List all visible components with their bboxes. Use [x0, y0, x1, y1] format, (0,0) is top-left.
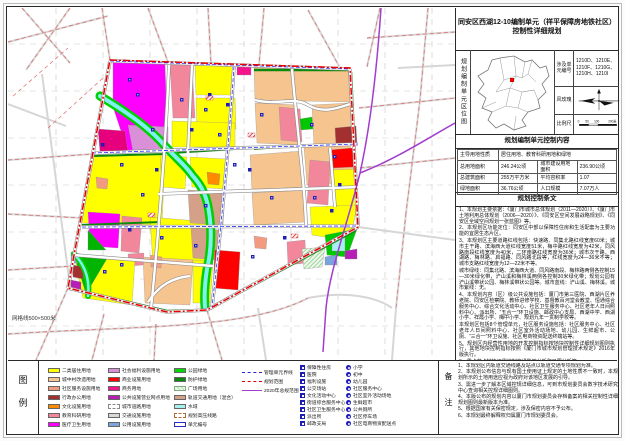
legend-line-red-dashdot: [242, 381, 262, 382]
legend-item: 行政办公用地: [48, 393, 100, 402]
legend-item: 单元编号: [174, 420, 236, 429]
notes-text: 1、本规划区内轨道交通线路及站点以轨道交通专项规划为准。2、本规划公布信息与现有…: [458, 363, 618, 432]
legend-facility-item: 幼儿园: [346, 378, 396, 385]
legend-column-3: 公园绿地防护绿地广场用地轨道交通用地（混合）水域规划高压线路单元编号: [174, 366, 236, 429]
cell-value: 1.07: [577, 173, 616, 184]
cell-value: 居住用地、教育科研用地和绿地: [499, 150, 617, 161]
legend-notes-divider: [438, 361, 439, 434]
legend-swatch-fill: [48, 422, 60, 427]
legend-item-label: 幼儿园: [353, 378, 367, 385]
community-service-center-icon: [346, 386, 351, 391]
legend-facility-item: 社区停车场: [346, 413, 396, 420]
provisions-header: 规划控制条文: [456, 192, 618, 207]
post-office-icon: [300, 421, 305, 426]
scale-bar: 050 100200米: [574, 114, 622, 134]
legend-item: 公共设施营业网点用地: [108, 393, 170, 402]
public-toilet-icon: [346, 407, 351, 412]
legend-item-label: 交通设施用地: [122, 412, 151, 419]
legend-facility-item: 公交场站: [300, 385, 345, 392]
legend-facility-item: 街道综合服务中心: [300, 399, 345, 406]
scale-bar-row: 比例尺 050 100200米: [555, 114, 619, 134]
zoning-map-panel: 网格线500×500米: [8, 8, 455, 360]
svg-text:200米: 200米: [608, 118, 617, 123]
legend-item-label: 社区卫生服务中心: [307, 406, 345, 413]
legend-item: 文化设施用地: [48, 402, 100, 411]
legend-line-purple-solid: [242, 390, 262, 391]
legend-swatch-fill: [108, 422, 120, 427]
legend-item-label: 二类居住用地: [62, 367, 91, 374]
legend-column-lines: 管理单元界线规划范围2020年总规范围: [242, 368, 299, 395]
provision-item: 4、本规划内容（区）级公共设施包括：厦门市第三医院、西湖片区养老院、同安区检察院…: [459, 293, 615, 322]
legend-swatch-fill: [48, 377, 60, 382]
note-item: 4、本版公布的规划内容以厦门市规划委员会存档备案的相关控制性详细规划图则最新版本…: [458, 394, 618, 406]
legend-swatch-fill: [48, 404, 60, 409]
legend-facility-item: 派出所: [300, 413, 345, 420]
legend-item-label: 广场用地: [188, 385, 207, 392]
bus-station-icon: [300, 386, 305, 391]
legend-item: 公用设施用地: [108, 420, 170, 429]
legend-item-label: 公共设施营业网点用地: [122, 394, 170, 401]
hospital-icon: [300, 372, 305, 377]
legend-item-label: 规划范围: [264, 378, 283, 385]
legend-swatch-fill: [174, 404, 186, 409]
unit-codes-row: 涉及单元编号 1210D、1210E、1210F、1210G、1210H、121…: [555, 50, 619, 87]
legend-facility-item: 福利设施: [300, 378, 345, 385]
legend-item-label: 街道综合服务中心: [307, 399, 345, 406]
legend-column-facility-squares: 保障性住房医院福利设施公交场站文化活动中心街道综合服务中心社区卫生服务中心派出所…: [300, 364, 345, 427]
legend-swatch-fill: [108, 377, 120, 382]
legend-item: 社会福利设施用地: [108, 366, 170, 375]
svg-text:100: 100: [594, 119, 599, 123]
legend-item: 社区服务设施用地: [48, 384, 100, 393]
location-info-cells: 涉及单元编号 1210D、1210E、1210F、1210G、1210H、121…: [554, 50, 619, 134]
control-content-table: 主导用地性质 居住用地、教育科研用地和绿地 总用地面积 246.24公顷 城市建…: [456, 148, 618, 193]
legend-swatch-fill: [48, 413, 60, 418]
community-parking-icon: [346, 414, 351, 419]
unit-codes-label: 涉及单元编号: [555, 50, 574, 86]
sheet-title-line1: 同安区西湖12-10编制单元（祥平保障房地铁社区）: [456, 18, 618, 27]
legend-item: 城市道路用地: [108, 402, 170, 411]
legend-item-label: 医院: [307, 371, 317, 378]
scale-bar-label: 比例尺: [555, 114, 574, 134]
delivery-point-icon: [346, 421, 351, 426]
legend-item-label: 防护绿地: [188, 376, 207, 383]
legend-item-label: 轨道交通用地（混合）: [188, 394, 236, 401]
zoning-map: 网格线500×500米: [8, 8, 455, 360]
legend-item-label: 派出所: [307, 413, 321, 420]
legend-swatch-fill: [48, 386, 60, 391]
provisions-text: 1、本规划主要依据：《厦门市城市总体规划（2011—2020）》、《厦门市土地利…: [456, 206, 618, 360]
legend-item: 规划高压线路: [174, 411, 236, 420]
legend-column-facility-circles: 小学初中幼儿园社区服务中心社区室外活动场地生鲜超市公共厕所社区停车场社区电商物资…: [346, 364, 396, 427]
provision-item: 2、本规划区功能定位：同安区中部以保障性住房和生活配套为主要功能的宜居生态片区。: [459, 226, 615, 238]
legend-item-label: 城中村改造用地: [62, 376, 96, 383]
legend-facility-item: 生鲜超市: [346, 399, 396, 406]
legend-swatch-fill: [48, 368, 60, 373]
map-grid-note: 网格线500×500米: [12, 314, 56, 322]
legend-facility-item: 初中: [346, 371, 396, 378]
cell-value: 255万平方米: [499, 173, 538, 184]
provision-item: 本规划区包括8个管理单元，社区服务设施包括：社区服务中心、社区老年人日间照料中心…: [459, 323, 615, 340]
legend-item: 公园绿地: [174, 366, 236, 375]
legend-swatch-fill: [108, 386, 120, 391]
legend-item-label: 保障性住房: [307, 364, 331, 371]
cell-value: 246.24公顷: [499, 160, 538, 173]
legend-item: 水域: [174, 402, 236, 411]
legend-item-label: 医疗卫生用地: [62, 421, 91, 428]
kindergarten-icon: [346, 379, 351, 384]
legend-item: 医疗卫生用地: [48, 420, 100, 429]
legend-item: 商业设施用地: [108, 375, 170, 384]
legend-item-label: 公交场站: [307, 385, 326, 392]
legend-item-label: 管理单元界线: [264, 369, 293, 376]
provision-item: 1、本规划主要依据：《厦门市城市总体规划（2011—2020）》、《厦门市土地利…: [459, 208, 615, 225]
note-item: 2、本规划公布信息与现有国土使用证上规定的土地性质不一致时，本规划所示的土地用途…: [458, 369, 618, 381]
legend-facility-item: 邮政支局: [300, 420, 345, 427]
notes-title: 备注: [440, 361, 457, 434]
provision-item: 5、规划区内经营性用地的开发控制指标按地块控制性详细规划图则执行，其他地块控制指…: [459, 342, 615, 359]
provision-item: 3、本规划区主要道路红线包括：快速路、同集北路红线宽度60米；城市主干路、滨海西…: [459, 239, 615, 268]
legend-swatch-fill: [108, 368, 120, 373]
legend-item: 城中村改造用地: [48, 375, 100, 384]
location-section: 规划编制单元区位图 涉及单元编号: [456, 50, 618, 135]
legend-swatch-fill: [174, 395, 186, 400]
legend-item: 交通设施用地: [108, 411, 170, 420]
outdoor-activity-ground-icon: [346, 393, 351, 398]
sheet-title: 同安区西湖12-10编制单元（祥平保障房地铁社区） 控制性详细规划: [456, 8, 618, 51]
legend-facility-item: 社区服务中心: [346, 385, 396, 392]
sheet-title-line2: 控制性详细规划: [456, 27, 618, 36]
legend-item-label: 商务用地: [122, 385, 141, 392]
legend-swatch-fill: [108, 413, 120, 418]
legend-swatch-fill: [48, 395, 60, 400]
police-station-icon: [300, 414, 305, 419]
legend-swatch-hatch: [174, 386, 186, 391]
legend-facility-item: 社区电商物资配送点: [346, 420, 396, 427]
legend-item-label: 单元编号: [188, 421, 207, 428]
cell-label: 总用地面积: [458, 160, 499, 173]
legend-item: 轨道交通用地（混合）: [174, 393, 236, 402]
unit-codes-value: 1210D、1210E、1210F、1210G、1210H、1210I: [574, 50, 619, 86]
control-content-header: 规划编制单元控制内容: [456, 134, 618, 149]
svg-text:50: 50: [585, 119, 589, 123]
legend-line-item: 规划范围: [242, 377, 299, 386]
legend-item-label: 公共厕所: [353, 406, 372, 413]
legend-item-label: 社会福利设施用地: [122, 367, 160, 374]
legend-item: 广场用地: [174, 384, 236, 393]
culture-center-icon: [300, 393, 305, 398]
legend-item-label: 公园绿地: [188, 367, 207, 374]
cell-label: 平均容积率: [538, 173, 577, 184]
legend-facility-item: 文化活动中心: [300, 392, 345, 399]
welfare-facility-icon: [300, 379, 305, 384]
legend-item-label: 教育科研用地: [62, 412, 91, 419]
legend-swatch-road: [108, 404, 120, 409]
legend-item-label: 水域: [188, 403, 198, 410]
note-item: 6、本规划最终解释权归属厦门市规划委员会。: [458, 413, 618, 419]
legend-line-blue-dashdot: [242, 372, 262, 373]
wind-rose-row: 风玫瑰: [555, 86, 619, 115]
cell-value: 236.90公顷: [577, 160, 616, 173]
legend-item-label: 社区电商物资配送点: [353, 420, 396, 427]
table-row: 总用地面积 246.24公顷 城市建设用地面积 236.90公顷: [458, 160, 617, 173]
location-side-label: 规划编制单元区位图: [456, 50, 471, 134]
legend-item-label: 规划高压线路: [188, 412, 217, 419]
title-block-panel: 同安区西湖12-10编制单元（祥平保障房地铁社区） 控制性详细规划 规划编制单元…: [455, 8, 618, 360]
legend-item-label: 小学: [353, 364, 363, 371]
legend-column-2: 社会福利设施用地商业设施用地商务用地公共设施营业网点用地城市道路用地交通设施用地…: [108, 366, 170, 429]
legend-facility-item: 医院: [300, 371, 345, 378]
svg-text:0: 0: [578, 119, 580, 123]
affordable-housing-icon: [300, 365, 305, 370]
unit-location-marker: [510, 78, 514, 82]
community-clinic-icon: [300, 407, 305, 412]
legend-item: 教育科研用地: [48, 411, 100, 420]
legend-item-label: 社区服务中心: [353, 385, 382, 392]
legend-facility-item: 社区室外活动场地: [346, 392, 396, 399]
legend-item-label: 生鲜超市: [353, 399, 372, 406]
wind-rose-icon: [574, 86, 624, 114]
legend-line-item: 2020年总规范围: [242, 386, 299, 395]
cell-label: 城市建设用地面积: [538, 160, 577, 173]
legend-swatch-fill: [108, 395, 120, 400]
legend-item: 防护绿地: [174, 375, 236, 384]
legend-item-label: 公用设施用地: [122, 421, 151, 428]
legend-facility-item: 社区卫生服务中心: [300, 406, 345, 413]
legend-item-label: 初中: [353, 371, 363, 378]
legend-item-label: 社区服务设施用地: [62, 385, 100, 392]
provision-item: 城市绿线：同集北路、滨海西大道、同风路南段、梅林路两侧各控制15—30米绿化带，…: [459, 269, 615, 292]
legend-swatch-unitbox: [174, 422, 186, 427]
legend-swatch-dashedbox: [174, 413, 186, 418]
legend-facility-item: 公共厕所: [346, 406, 396, 413]
fresh-market-icon: [346, 400, 351, 405]
table-row: 主导用地性质 居住用地、教育科研用地和绿地: [458, 150, 617, 161]
legend-item-label: 2020年总规范围: [264, 387, 299, 394]
legend-and-notes-band: 图例 二类居住用地城中村改造用地社区服务设施用地行政办公用地文化设施用地教育科研…: [8, 360, 617, 434]
legend-item-label: 行政办公用地: [62, 394, 91, 401]
primary-school-icon: [346, 365, 351, 370]
legend-item-label: 城市道路用地: [122, 403, 151, 410]
street-service-center-icon: [300, 400, 305, 405]
cell-label: 主导用地性质: [458, 150, 499, 161]
legend-title: 图例: [8, 361, 39, 434]
middle-school-icon: [346, 372, 351, 377]
plan-sheet: 网格线500×500米 同安区西湖12-10编制单元（祥平保障房地铁社区） 控制…: [0, 0, 625, 441]
legend-item-label: 社区停车场: [353, 413, 377, 420]
legend-item: 商务用地: [108, 384, 170, 393]
legend-item-label: 商业设施用地: [122, 376, 151, 383]
legend-item-label: 福利设施: [307, 378, 326, 385]
note-item: 3、需进一步了解本区域控规详细信息，可到市规划委员会数字技术研究中心查询相关控规…: [458, 382, 618, 394]
legend-item-label: 邮政支局: [307, 420, 326, 427]
legend-facility-item: 保障性住房: [300, 364, 345, 371]
legend-item: 二类居住用地: [48, 366, 100, 375]
table-row: 总建筑面积 255万平方米 平均容积率 1.07: [458, 173, 617, 184]
legend-facility-item: 小学: [346, 364, 396, 371]
legend-swatch-fill: [174, 368, 186, 373]
legend-swatch-fill: [174, 377, 186, 382]
legend-line-item: 管理单元界线: [242, 368, 299, 377]
legend-column-1: 二类居住用地城中村改造用地社区服务设施用地行政办公用地文化设施用地教育科研用地医…: [48, 366, 100, 429]
district-locator-map: [470, 50, 554, 134]
legend-item-label: 文化设施用地: [62, 403, 91, 410]
legend-item-label: 社区室外活动场地: [353, 392, 391, 399]
legend-item-label: 文化活动中心: [307, 392, 336, 399]
cell-label: 总建筑面积: [458, 173, 499, 184]
wind-rose-label: 风玫瑰: [555, 86, 574, 114]
